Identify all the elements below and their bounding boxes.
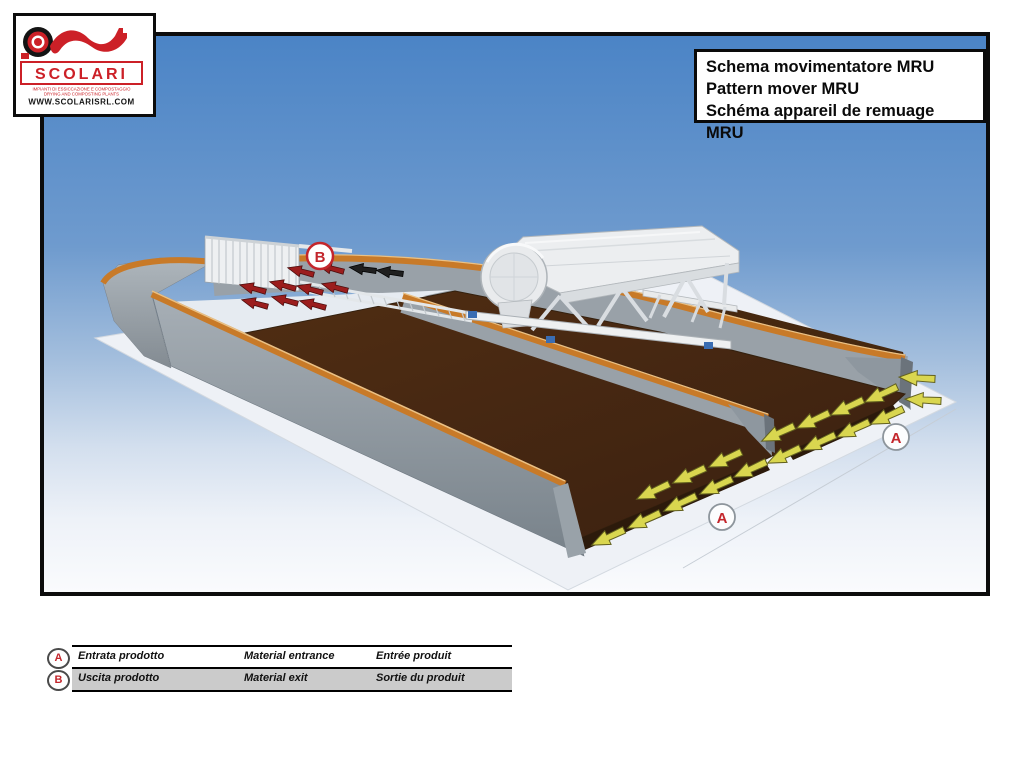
machine-drum bbox=[481, 244, 547, 310]
legend-exit-it: Uscita prodotto bbox=[78, 672, 159, 684]
title-line-french: Schéma appareil de remuage MRU bbox=[706, 100, 974, 144]
svg-text:A: A bbox=[891, 430, 902, 447]
logo-name: SCOLARI bbox=[35, 66, 128, 83]
page: B A A SCOLARI IMPIANTI DI bbox=[0, 0, 1024, 768]
legend-row-exit: Uscita prodotto Material exit Sortie du … bbox=[72, 667, 512, 692]
roller-icon bbox=[21, 27, 53, 59]
marker-b: B bbox=[307, 243, 333, 269]
marker-a-1: A bbox=[709, 504, 735, 530]
legend-row-entrance: Entrata prodotto Material entrance Entré… bbox=[72, 645, 512, 667]
machine-tag bbox=[704, 342, 713, 349]
machine-tag bbox=[546, 336, 555, 343]
legend-exit-fr: Sortie du produit bbox=[376, 672, 465, 684]
wave-icon bbox=[50, 28, 127, 53]
marker-a-2: A bbox=[883, 424, 909, 450]
logo-tagline-en: DRYING AND COMPOSTING PLANTS bbox=[44, 92, 119, 97]
scolari-logo-graphic: SCOLARI IMPIANTI DI ESSICCAZIONE E COMPO… bbox=[16, 16, 147, 108]
legend-marker-a: A bbox=[47, 648, 70, 669]
legend-entrance-it: Entrata prodotto bbox=[78, 650, 164, 662]
scolari-logo: SCOLARI IMPIANTI DI ESSICCAZIONE E COMPO… bbox=[13, 13, 156, 117]
title-line-italian: Schema movimentatore MRU bbox=[706, 56, 974, 78]
svg-text:A: A bbox=[717, 510, 728, 527]
title-line-english: Pattern mover MRU bbox=[706, 78, 974, 100]
legend-entrance-fr: Entrée produit bbox=[376, 650, 451, 662]
legend-table: Entrata prodotto Material entrance Entré… bbox=[72, 645, 512, 692]
legend-marker-b: B bbox=[47, 670, 70, 691]
legend-exit-en: Material exit bbox=[244, 672, 308, 684]
svg-text:B: B bbox=[315, 249, 326, 266]
title-box: Schema movimentatore MRU Pattern mover M… bbox=[694, 49, 986, 123]
legend-entrance-en: Material entrance bbox=[244, 650, 334, 662]
machine-tag bbox=[468, 311, 477, 318]
logo-website: WWW.SCOLARISRL.COM bbox=[28, 98, 134, 107]
